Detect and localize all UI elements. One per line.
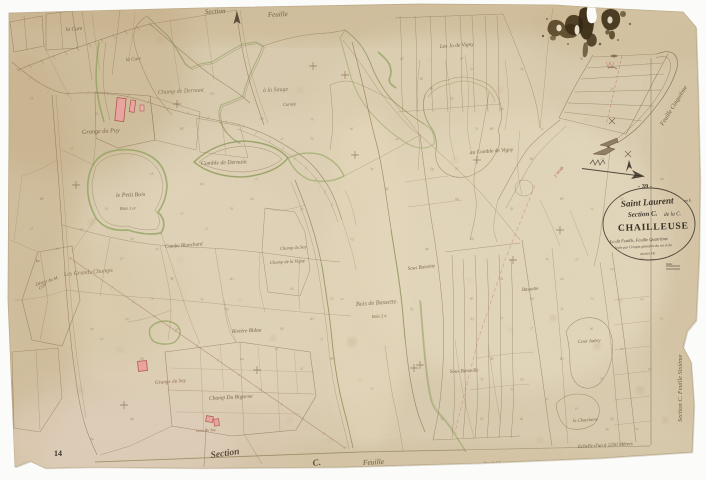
svg-text:23: 23 xyxy=(255,177,259,181)
svg-text:75: 75 xyxy=(590,207,594,211)
svg-text:83: 83 xyxy=(310,317,314,321)
svg-text:51: 51 xyxy=(95,112,99,116)
svg-text:44: 44 xyxy=(240,357,244,361)
svg-text:34: 34 xyxy=(175,327,179,331)
svg-text:C.: C. xyxy=(312,457,322,468)
svg-text:17: 17 xyxy=(120,257,124,261)
svg-text:60: 60 xyxy=(610,267,614,271)
svg-text:60: 60 xyxy=(180,127,184,131)
svg-text:26: 26 xyxy=(125,317,129,321)
svg-text:14: 14 xyxy=(54,449,62,458)
svg-text:Feuille: Feuille xyxy=(362,457,385,467)
svg-text:16: 16 xyxy=(155,247,159,251)
svg-text:61: 61 xyxy=(580,57,584,61)
svg-text:Janvier 18..: Janvier 18.. xyxy=(640,251,656,256)
svg-text:84: 84 xyxy=(130,417,134,421)
svg-text:58: 58 xyxy=(130,237,134,241)
svg-text:55: 55 xyxy=(70,147,74,151)
svg-text:15: 15 xyxy=(330,297,334,301)
svg-text:en b.: en b. xyxy=(684,197,692,203)
svg-text:81: 81 xyxy=(520,417,524,421)
svg-text:67: 67 xyxy=(455,167,459,171)
svg-text:11: 11 xyxy=(320,337,324,341)
svg-text:56: 56 xyxy=(260,117,264,121)
svg-text:18: 18 xyxy=(250,197,254,201)
svg-text:95: 95 xyxy=(385,187,389,191)
svg-text:60: 60 xyxy=(660,177,664,181)
svg-text:Bois 1 er: Bois 1 er xyxy=(120,205,137,211)
svg-text:20: 20 xyxy=(560,277,564,281)
svg-text:69: 69 xyxy=(225,307,229,311)
svg-text:53: 53 xyxy=(470,317,474,321)
svg-text:42: 42 xyxy=(395,137,399,141)
svg-text:47: 47 xyxy=(90,327,94,331)
svg-text:74: 74 xyxy=(310,137,314,141)
svg-text:23: 23 xyxy=(400,57,404,61)
svg-text:de la C.: de la C. xyxy=(664,211,682,218)
svg-text:Section C. Feuille Sixième: Section C. Feuille Sixième xyxy=(677,354,684,422)
svg-text:Curnée: Curnée xyxy=(283,101,296,107)
svg-text:72: 72 xyxy=(440,417,444,421)
svg-text:92: 92 xyxy=(410,307,414,311)
svg-text:99: 99 xyxy=(530,297,534,301)
svg-text:38: 38 xyxy=(170,277,174,281)
svg-text:80: 80 xyxy=(490,127,494,131)
svg-text:Section: Section xyxy=(205,7,226,16)
svg-text:23: 23 xyxy=(280,137,284,141)
svg-text:53: 53 xyxy=(600,377,604,381)
svg-text:34: 34 xyxy=(560,167,564,171)
svg-text:86: 86 xyxy=(90,437,94,441)
svg-text:19: 19 xyxy=(210,92,214,96)
svg-text:21: 21 xyxy=(300,207,304,211)
svg-text:18: 18 xyxy=(280,327,284,331)
svg-text:26: 26 xyxy=(640,257,644,261)
svg-text:77: 77 xyxy=(590,297,594,301)
svg-text:69: 69 xyxy=(620,347,624,351)
svg-text:83: 83 xyxy=(230,277,234,281)
svg-text:88: 88 xyxy=(40,197,44,201)
svg-text:89: 89 xyxy=(560,197,564,201)
svg-text:93: 93 xyxy=(660,317,664,321)
svg-text:37: 37 xyxy=(180,212,184,216)
svg-text:31: 31 xyxy=(520,67,524,71)
svg-text:65: 65 xyxy=(200,182,204,186)
svg-text:41: 41 xyxy=(500,277,504,281)
svg-text:34: 34 xyxy=(560,307,564,311)
svg-text:47: 47 xyxy=(545,397,549,401)
svg-text:15: 15 xyxy=(480,417,484,421)
svg-text:28: 28 xyxy=(140,357,144,361)
svg-text:14: 14 xyxy=(150,172,154,176)
svg-text:27: 27 xyxy=(610,87,614,91)
svg-text:Table: Table xyxy=(666,262,673,266)
svg-text:le Petit Bois: le Petit Bois xyxy=(116,192,146,199)
svg-text:50: 50 xyxy=(430,167,434,171)
svg-text:73: 73 xyxy=(30,97,34,101)
svg-text:99: 99 xyxy=(330,357,334,361)
svg-text:la Cure: la Cure xyxy=(66,26,83,33)
svg-text:82: 82 xyxy=(530,157,534,161)
svg-text:81: 81 xyxy=(430,87,434,91)
svg-text:69: 69 xyxy=(500,107,504,111)
svg-text:45: 45 xyxy=(635,427,639,431)
svg-text:53: 53 xyxy=(610,417,614,421)
svg-text:46: 46 xyxy=(425,247,429,251)
svg-text:Bois 2 e: Bois 2 e xyxy=(372,313,387,319)
svg-text:12: 12 xyxy=(350,237,354,241)
svg-text:Section C.: Section C. xyxy=(628,209,658,219)
svg-text:Feuille: Feuille xyxy=(267,10,288,19)
svg-text:49: 49 xyxy=(340,297,344,301)
svg-text:75: 75 xyxy=(150,297,154,301)
svg-text:16: 16 xyxy=(290,287,294,291)
svg-text:57: 57 xyxy=(460,57,464,61)
svg-text:35: 35 xyxy=(55,247,59,251)
svg-text:92: 92 xyxy=(100,337,104,341)
svg-text:17: 17 xyxy=(370,387,374,391)
